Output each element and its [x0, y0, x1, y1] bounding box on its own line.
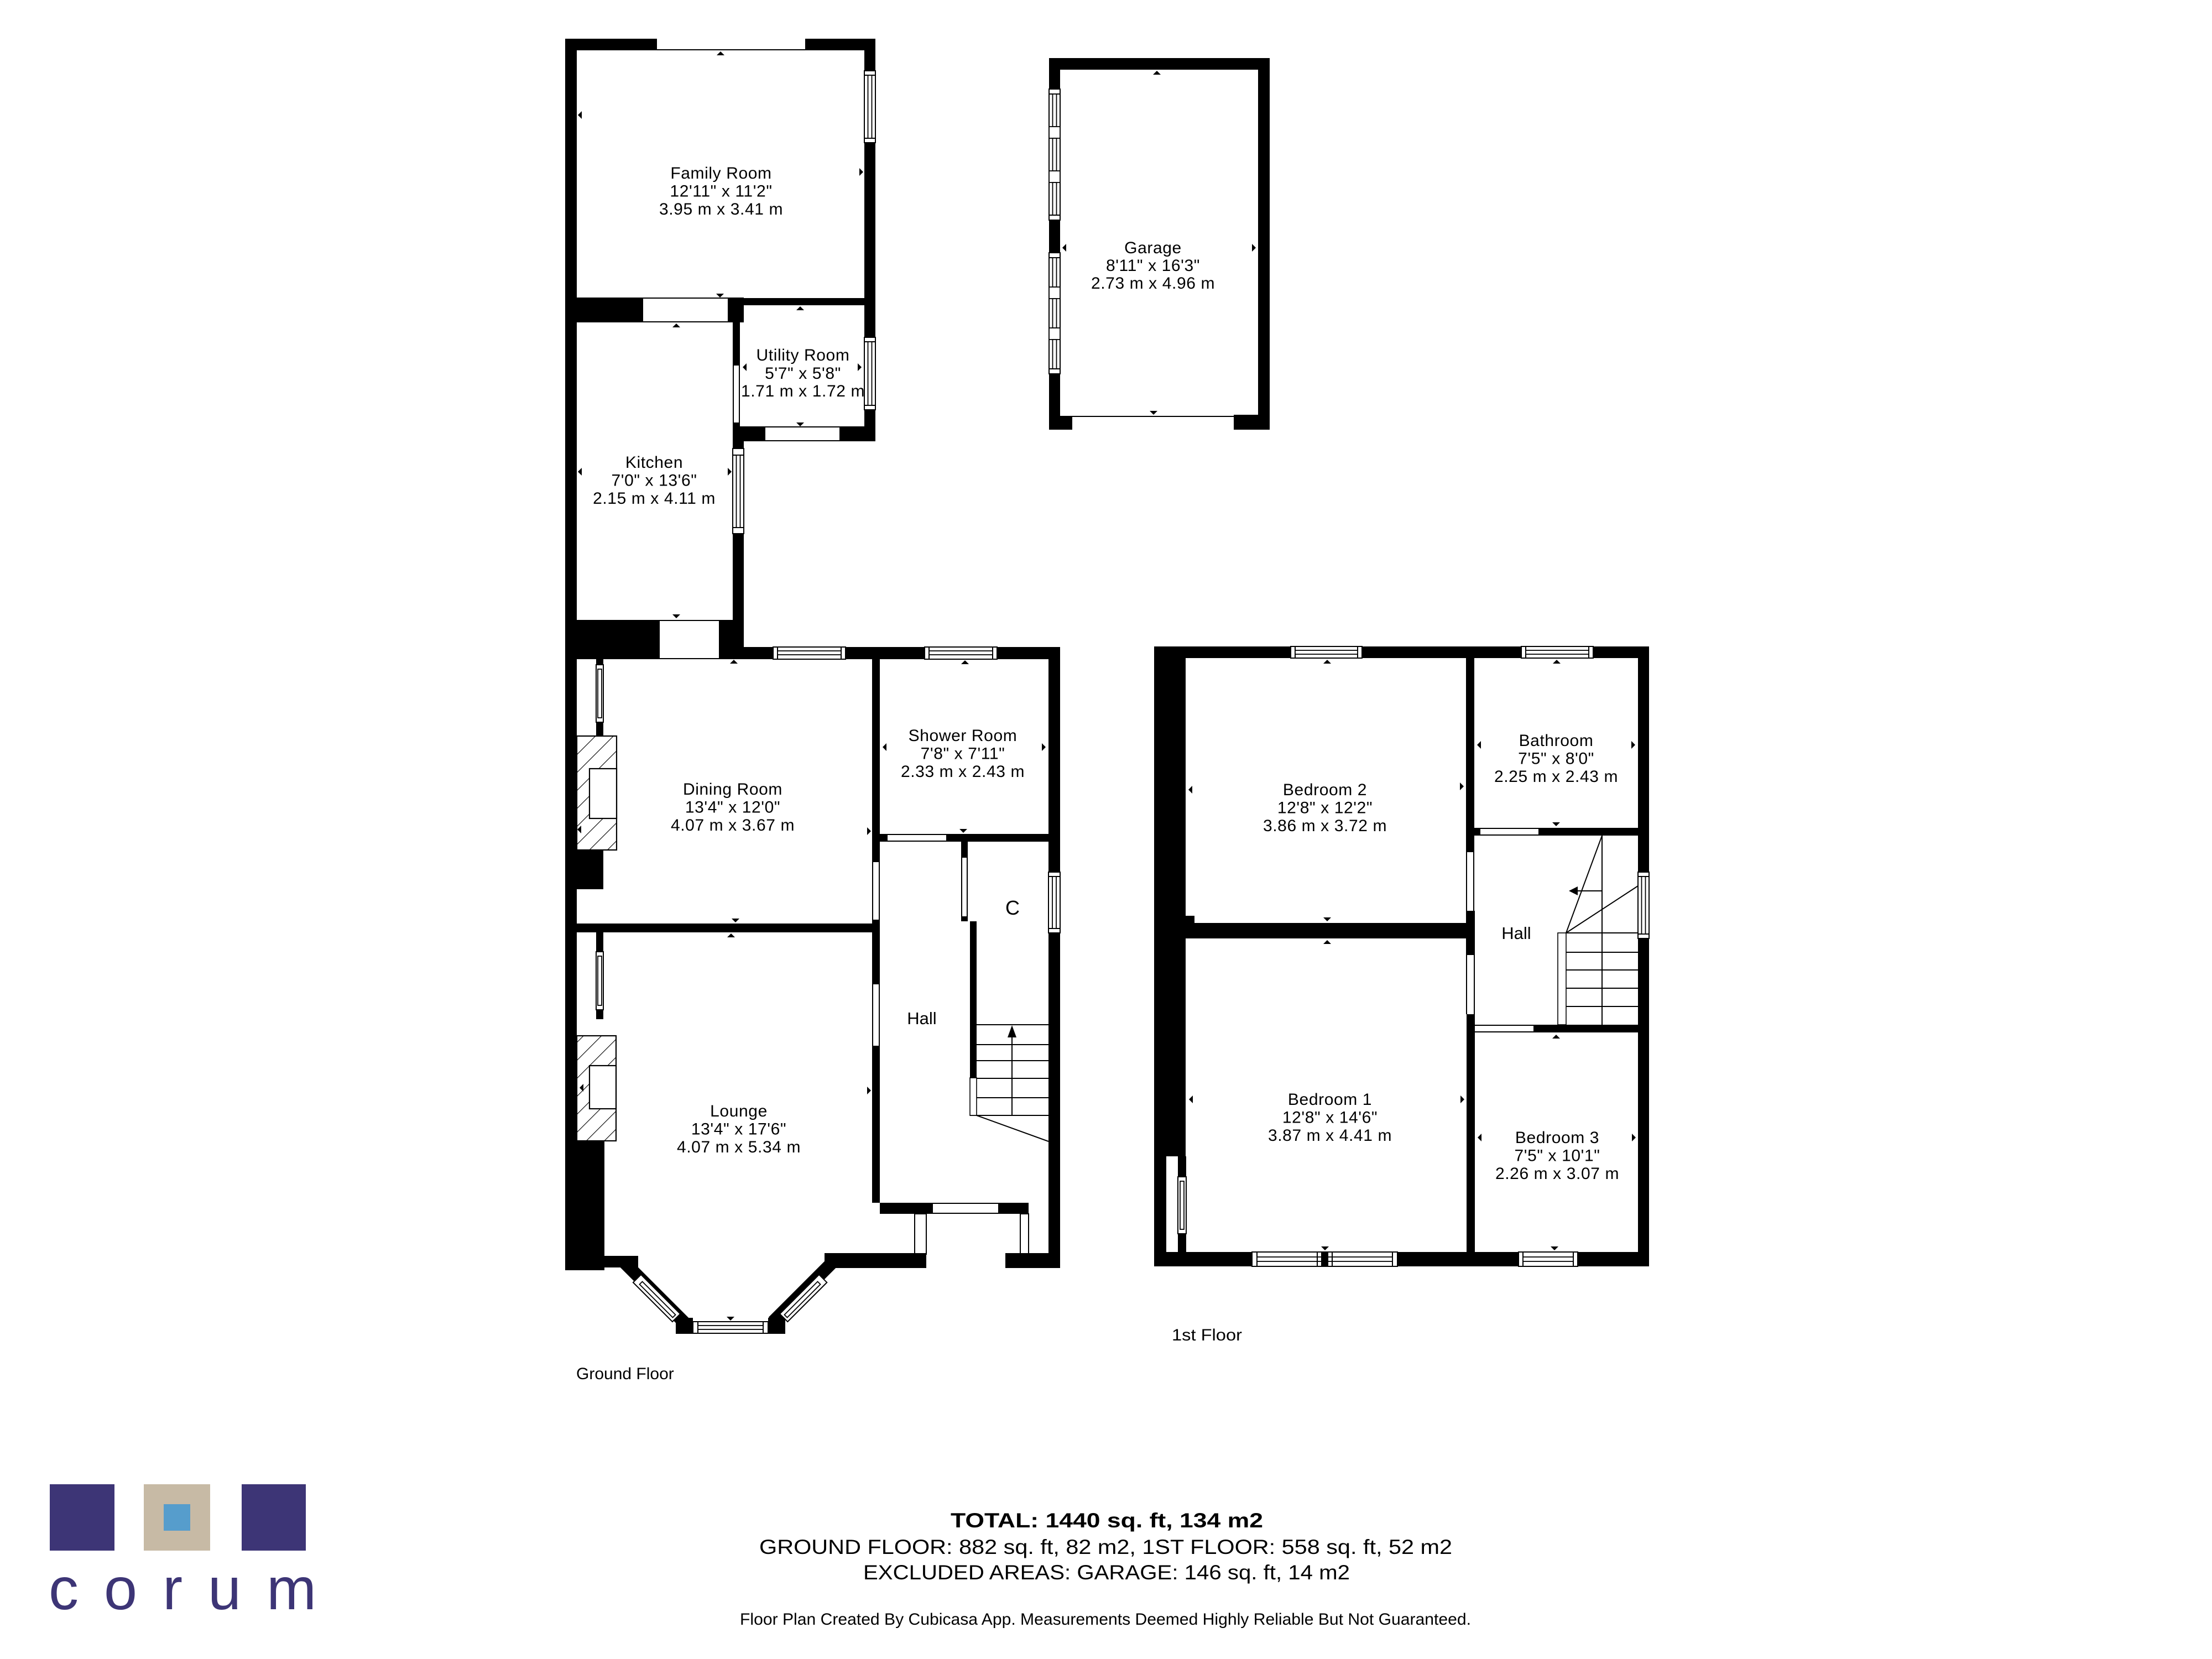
svg-text:Floor Plan Created By Cubicasa: Floor Plan Created By Cubicasa App. Meas…: [740, 1610, 1471, 1629]
svg-text:Shower Room: Shower Room: [909, 727, 1018, 745]
svg-text:1.71 m x 1.72 m: 1.71 m x 1.72 m: [741, 382, 865, 400]
svg-text:Ground Floor: Ground Floor: [576, 1365, 674, 1383]
svg-text:Kitchen: Kitchen: [625, 453, 683, 472]
svg-text:Lounge: Lounge: [710, 1102, 768, 1120]
svg-text:2.25 m x 2.43 m: 2.25 m x 2.43 m: [1494, 768, 1618, 786]
svg-text:Hall: Hall: [907, 1009, 936, 1028]
svg-text:13'4" x 17'6": 13'4" x 17'6": [691, 1120, 786, 1139]
svg-text:7'8" x 7'11": 7'8" x 7'11": [921, 745, 1005, 763]
svg-text:12'8" x 14'6": 12'8" x 14'6": [1282, 1109, 1378, 1127]
svg-text:3.95 m x 3.41 m: 3.95 m x 3.41 m: [659, 200, 783, 218]
svg-text:GROUND FLOOR: 882 sq. ft, 82 m: GROUND FLOOR: 882 sq. ft, 82 m2, 1ST FLO…: [759, 1536, 1452, 1558]
svg-text:2.33 m x 2.43 m: 2.33 m x 2.43 m: [901, 763, 1025, 781]
svg-text:Bathroom: Bathroom: [1519, 732, 1594, 750]
svg-text:3.87 m x 4.41 m: 3.87 m x 4.41 m: [1268, 1126, 1392, 1145]
svg-text:Bedroom 3: Bedroom 3: [1515, 1129, 1599, 1147]
svg-text:4.07 m x 5.34 m: 4.07 m x 5.34 m: [677, 1138, 801, 1156]
svg-text:Family Room: Family Room: [670, 164, 771, 182]
svg-text:EXCLUDED AREAS: GARAGE: 146 sq: EXCLUDED AREAS: GARAGE: 146 sq. ft, 14 m…: [863, 1561, 1350, 1584]
svg-text:TOTAL: 1440 sq. ft, 134 m2: TOTAL: 1440 sq. ft, 134 m2: [951, 1509, 1263, 1532]
svg-text:C: C: [1005, 896, 1020, 919]
svg-text:Bedroom 2: Bedroom 2: [1283, 781, 1367, 799]
svg-text:3.86 m x 3.72 m: 3.86 m x 3.72 m: [1263, 817, 1387, 835]
svg-text:7'5" x 8'0": 7'5" x 8'0": [1518, 750, 1594, 768]
svg-text:2.73 m x 4.96 m: 2.73 m x 4.96 m: [1091, 274, 1215, 293]
svg-text:Dining Room: Dining Room: [683, 780, 782, 799]
svg-text:12'8" x 12'2": 12'8" x 12'2": [1277, 799, 1373, 817]
svg-text:Garage: Garage: [1124, 239, 1182, 257]
svg-text:4.07 m x 3.67 m: 4.07 m x 3.67 m: [671, 816, 795, 834]
svg-text:8'11" x 16'3": 8'11" x 16'3": [1106, 257, 1200, 275]
svg-text:7'0" x 13'6": 7'0" x 13'6": [611, 472, 697, 490]
svg-text:corum: corum: [49, 1555, 342, 1622]
svg-text:Utility Room: Utility Room: [757, 346, 850, 364]
svg-text:7'5" x 10'1": 7'5" x 10'1": [1514, 1147, 1600, 1165]
svg-text:5'7" x 5'8": 5'7" x 5'8": [765, 364, 841, 383]
svg-text:2.26 m x 3.07 m: 2.26 m x 3.07 m: [1495, 1165, 1619, 1183]
svg-text:2.15 m x 4.11 m: 2.15 m x 4.11 m: [593, 489, 716, 508]
svg-text:13'4" x 12'0": 13'4" x 12'0": [685, 799, 780, 817]
svg-text:12'11" x 11'2": 12'11" x 11'2": [670, 182, 772, 201]
svg-text:Bedroom 1: Bedroom 1: [1288, 1091, 1372, 1109]
svg-text:1st Floor: 1st Floor: [1172, 1326, 1242, 1344]
svg-text:Hall: Hall: [1501, 924, 1531, 943]
